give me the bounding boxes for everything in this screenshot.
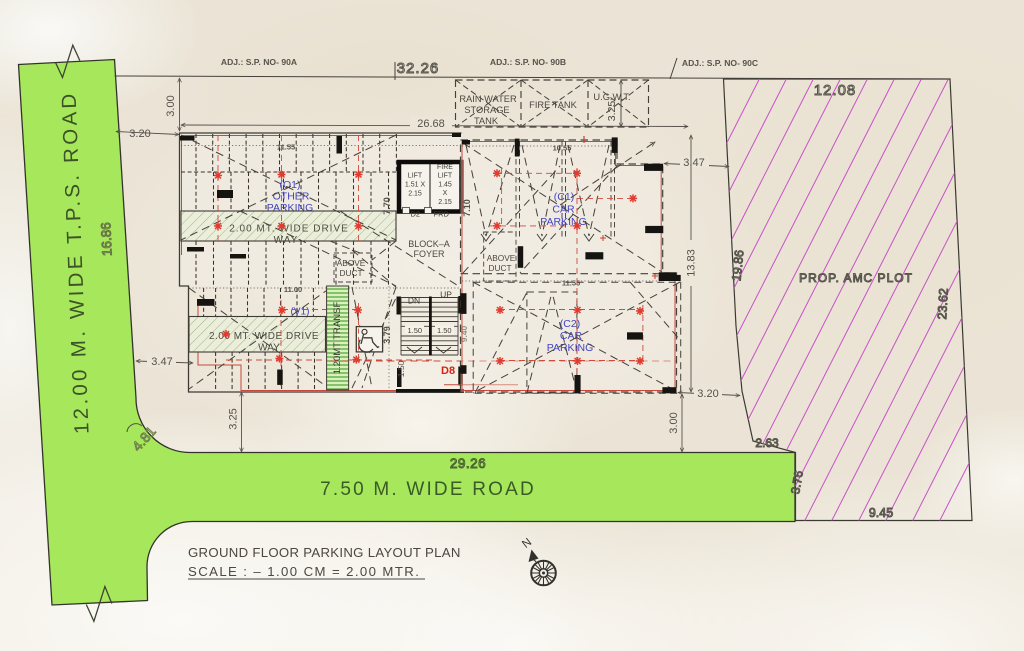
svg-text:DUCT: DUCT <box>339 268 362 278</box>
svg-text:9.45: 9.45 <box>869 506 893 520</box>
svg-text:PROP. AMC PLOT: PROP. AMC PLOT <box>799 271 913 285</box>
svg-text:12.08: 12.08 <box>814 82 857 99</box>
svg-text:13.83: 13.83 <box>686 249 698 277</box>
svg-text:3.47: 3.47 <box>151 356 172 368</box>
svg-text:STORAGE: STORAGE <box>464 105 509 115</box>
svg-text:3.47: 3.47 <box>683 157 704 169</box>
svg-text:WAY: WAY <box>274 235 299 246</box>
svg-text:1.51 X: 1.51 X <box>405 182 426 189</box>
svg-text:LIFT: LIFT <box>438 173 453 180</box>
svg-text:ABOVE: ABOVE <box>337 258 366 268</box>
svg-text:D8: D8 <box>441 365 455 377</box>
svg-text:FIRE: FIRE <box>437 164 453 171</box>
svg-text:19.86: 19.86 <box>729 249 746 282</box>
svg-text:3.25: 3.25 <box>228 408 240 429</box>
svg-text:3.79: 3.79 <box>382 326 392 344</box>
svg-text:(O1): (O1) <box>280 179 301 191</box>
svg-text:1.50: 1.50 <box>396 360 406 377</box>
svg-text:FRD: FRD <box>434 210 450 219</box>
svg-text:UP: UP <box>440 290 452 300</box>
svg-text:DN: DN <box>408 296 420 306</box>
svg-text:SCALE : – 1.00 CM = 2.00: SCALE : – 1.00 CM = 2.00 MTR. <box>188 564 420 579</box>
svg-text:ADJ.: S.P. NO- 90B: ADJ.: S.P. NO- 90B <box>490 57 566 67</box>
svg-text:(C1): (C1) <box>554 191 574 203</box>
svg-text:ADJ.: S.P. NO- 90C: ADJ.: S.P. NO- 90C <box>682 58 758 68</box>
svg-text:FIRE TANK: FIRE TANK <box>529 100 577 110</box>
svg-text:TANK: TANK <box>474 116 499 126</box>
svg-text:RAIN WATER: RAIN WATER <box>459 94 517 104</box>
svg-text:CAR: CAR <box>552 204 575 216</box>
svg-text:2.00 MT. WIDE DRIVE: 2.00 MT. WIDE DRIVE <box>229 224 349 235</box>
svg-text:1.20MT TRANSF: 1.20MT TRANSF <box>332 302 343 375</box>
svg-text:U.G.W.T.: U.G.W.T. <box>593 92 630 102</box>
svg-text:PARKING: PARKING <box>547 342 593 354</box>
svg-text:1.50: 1.50 <box>407 326 422 335</box>
svg-text:3.76: 3.76 <box>788 469 806 495</box>
svg-text:16.86: 16.86 <box>98 222 114 256</box>
svg-text:7.10: 7.10 <box>462 199 472 217</box>
svg-text:3.20: 3.20 <box>697 388 718 400</box>
svg-text:3.00: 3.00 <box>668 412 680 433</box>
svg-text:2.15: 2.15 <box>438 199 452 206</box>
svg-text:(V1): (V1) <box>291 307 310 318</box>
svg-text:29.26: 29.26 <box>450 456 486 471</box>
svg-text:3.25: 3.25 <box>606 101 618 122</box>
svg-text:2.63: 2.63 <box>755 436 779 450</box>
svg-text:1.50: 1.50 <box>437 326 452 335</box>
svg-text:26.68: 26.68 <box>417 118 445 130</box>
svg-text:X: X <box>443 190 448 197</box>
svg-text:ADJ.: S.P. NO- 90A: ADJ.: S.P. NO- 90A <box>221 57 297 67</box>
svg-text:WAY: WAY <box>258 343 280 354</box>
svg-text:GROUND FLOOR PARKING LAYOUT: GROUND FLOOR PARKING LAYOUT PLAN <box>188 545 461 560</box>
svg-text:2.15: 2.15 <box>408 191 422 198</box>
svg-text:ABOVE: ABOVE <box>487 253 516 263</box>
svg-text:LIFT: LIFT <box>408 173 423 180</box>
svg-text:7.70: 7.70 <box>382 197 392 215</box>
svg-text:3.00: 3.00 <box>165 95 177 116</box>
svg-text:D2: D2 <box>411 210 421 219</box>
svg-text:23.62: 23.62 <box>935 288 951 320</box>
svg-text:FOYER: FOYER <box>413 249 445 259</box>
svg-text:3.20: 3.20 <box>129 128 150 140</box>
svg-text:7.50 M. WIDE ROAD: 7.50 M. WIDE ROAD <box>320 479 536 500</box>
svg-text:11.00: 11.00 <box>284 285 302 294</box>
svg-text:N: N <box>520 536 534 551</box>
svg-text:32.26: 32.26 <box>397 60 440 77</box>
svg-text:DUCT: DUCT <box>488 263 511 273</box>
svg-text:BLOCK–A: BLOCK–A <box>408 239 450 249</box>
svg-text:1.45: 1.45 <box>438 182 452 189</box>
